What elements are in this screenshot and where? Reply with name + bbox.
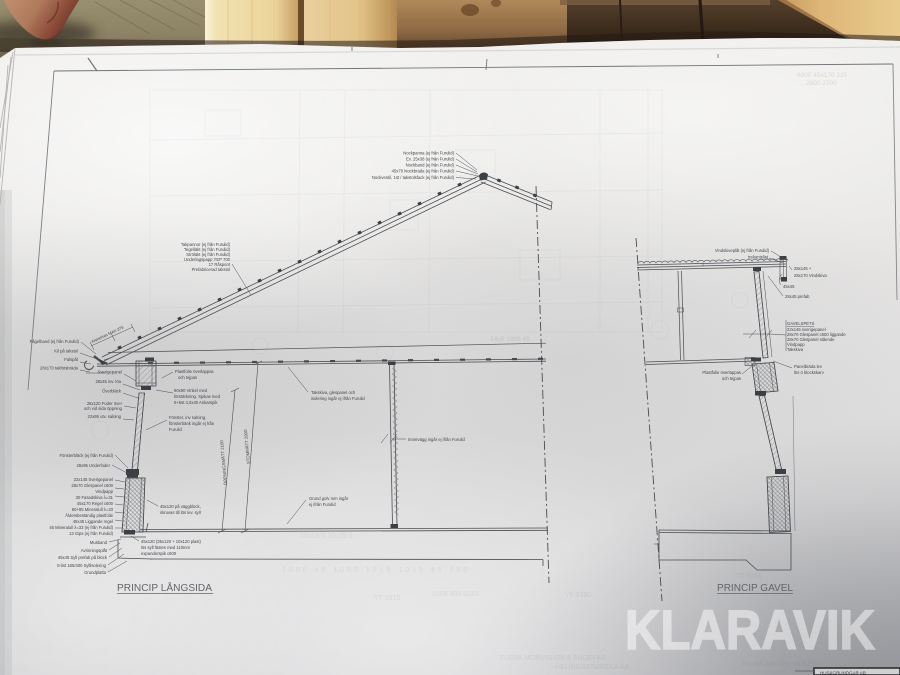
svg-text:45 Mineralull λ=33 (ej från Fu: 45 Mineralull λ=33 (ej från Furulid) (49, 525, 113, 530)
svg-text:Innervägg ingår ej ifrån Furul: Innervägg ingår ej ifrån Furulid (408, 437, 465, 442)
svg-text:Överbläck: Överbläck (102, 389, 122, 394)
svg-text:trekantslist: trekantslist (748, 255, 769, 260)
svg-text:skruvas till lös lev. syll: skruvas till lös lev. syll (160, 510, 201, 515)
svg-text:80+95 Mineralull λ=33: 80+95 Mineralull λ=33 (72, 507, 114, 512)
svg-text:8800 45x170 1z5: 8800 45x170 1z5 (797, 72, 847, 79)
svg-text:PRINCIP LÅNGSIDA: PRINCIP LÅNGSIDA (117, 581, 212, 594)
svg-text:28x45 inv. löa: 28x45 inv. löa (95, 379, 121, 384)
svg-text:BV MX AB-GHL-AVKEGIA: BV MX AB-GHL-AVKEGIA (742, 661, 824, 668)
svg-text:förstärkning. Spikas med: förstärkning. Spikas med (174, 394, 221, 399)
svg-text:och tejpas: och tejpas (178, 375, 197, 380)
svg-text:1000 45 1000 1015 1015: 1000 45 1000 1015 1015 45 500 (282, 567, 470, 574)
svg-text:45x120 (35x120 + 10x120 plast): 45x120 (35x120 + 10x120 plast) (141, 539, 202, 544)
svg-text:YT 5310: YT 5310 (374, 595, 400, 602)
svg-text:5+5st 4,0x40 Ankarspik: 5+5st 4,0x40 Ankarspik (174, 400, 218, 405)
svg-text:Åldersbeständig plastfolie: Åldersbeständig plastfolie (65, 513, 113, 518)
svg-text:Kil på takstol: Kil på takstol (54, 349, 78, 354)
svg-text:HELINGSATMKEKA AB: HELINGSATMKEKA AB (555, 664, 630, 671)
svg-text:Fönsterbläck (ej från Furulid): Fönsterbläck (ej från Furulid) (59, 453, 113, 458)
svg-text:28x95 Underfoder: 28x95 Underfoder (76, 463, 110, 468)
svg-text:HUS&GRUNDGAR AB: HUS&GRUNDGAR AB (820, 671, 866, 675)
svg-text:10u15 0 10u15 0: 10u15 0 10u15 0 (300, 533, 353, 540)
svg-text:13 Gips (ej från Furulid): 13 Gips (ej från Furulid) (69, 531, 114, 536)
svg-text:28x170 Vindskiva: 28x170 Vindskiva (794, 273, 827, 278)
svg-text:Takskiva, glespanel och: Takskiva, glespanel och (311, 390, 356, 395)
svg-text:Vindpapp: Vindpapp (95, 489, 113, 494)
svg-text:Falspåt: Falspåt (64, 357, 79, 362)
svg-text:45x70 Nockbräda (ej från Furul: 45x70 Nockbräda (ej från Furulid) (392, 169, 455, 174)
svg-text:S-list 165/400 Syllisolering: S-list 165/400 Syllisolering (57, 563, 107, 568)
svg-text:expanderspik c600: expanderspik c600 (141, 551, 177, 556)
svg-text:ÖPPNINGSMÅTT 2100: ÖPPNINGSMÅTT 2100 (219, 439, 228, 485)
svg-text:28x145 +: 28x145 + (794, 266, 812, 271)
svg-text:Y6 9350: Y6 9350 (565, 592, 591, 599)
svg-text:Nockventil, 1st / takstolsfack: Nockventil, 1st / takstolsfack (ej från … (372, 175, 455, 180)
svg-text:22x145 Sverigepanel: 22x145 Sverigepanel (74, 477, 113, 482)
svg-text:YT 9350: YT 9350 (736, 573, 762, 580)
svg-text:lös ö blockskarv: lös ö blockskarv (794, 370, 825, 375)
svg-text:45x45: 45x45 (783, 284, 795, 289)
svg-text:Vindskiveplåt (ej från Furulid: Vindskiveplåt (ej från Furulid) (715, 248, 770, 253)
svg-text:Fönster, inv salning,: Fönster, inv salning, (169, 415, 206, 420)
svg-text:28x45 prefab: 28x45 prefab (785, 294, 810, 299)
svg-text:30 Fasadskiva λ=31: 30 Fasadskiva λ=31 (76, 495, 114, 500)
svg-text:Plastfolie överlappas: Plastfolie överlappas (702, 370, 741, 375)
svg-text:Grund golv mm ingår: Grund golv mm ingår (309, 496, 349, 501)
svg-text:FLERA MONVIGATA & ANGEFAR: FLERA MONVIGATA & ANGEFAR (500, 655, 606, 662)
svg-text:Avrinningsplåt: Avrinningsplåt (81, 548, 108, 553)
svg-text:ej ifrån Furulid: ej ifrån Furulid (309, 502, 336, 507)
svg-text:Panelbräda lev: Panelbräda lev (794, 364, 823, 369)
svg-text:lös syll fästes med 110mm: lös syll fästes med 110mm (141, 545, 191, 550)
svg-text:Sverigepanel: Sverigepanel (98, 370, 123, 375)
svg-text:Nockpanna (ej från Furulid): Nockpanna (ej från Furulid) (403, 151, 454, 156)
svg-text:KLARAVIK: KLARAVIK (625, 598, 875, 661)
svg-text:2800 2700: 2800 2700 (806, 80, 837, 87)
svg-text:Musband: Musband (90, 540, 108, 545)
svg-text:STOMMÅTT 2900: STOMMÅTT 2900 (243, 429, 251, 465)
svg-text:90x90 Vinkel med: 90x90 Vinkel med (174, 388, 208, 393)
svg-text:1009 900 5015: 1009 900 5015 (432, 591, 479, 598)
svg-text:isolering ingår ej ifrån Furul: isolering ingår ej ifrån Furulid (311, 396, 365, 401)
svg-text:45x45 Liggande regel: 45x45 Liggande regel (73, 519, 113, 524)
svg-text:22x95 utv. salning: 22x95 utv. salning (88, 414, 122, 419)
svg-text:28x70 Glespanel c600: 28x70 Glespanel c600 (71, 483, 113, 488)
svg-text:Prefabricerad takstol: Prefabricerad takstol (192, 267, 230, 272)
svg-text:45x120 på väggblock,: 45x120 på väggblock, (160, 504, 201, 509)
svg-text:och tejpas: och tejpas (722, 376, 741, 381)
svg-text:Furulid: Furulid (169, 427, 182, 432)
svg-text:Plastfolie överlappas: Plastfolie överlappas (175, 369, 214, 374)
svg-text:Grundplatta: Grundplatta (84, 570, 107, 575)
svg-text:Takskiva: Takskiva (787, 347, 804, 352)
svg-text:45x170 Regel c600: 45x170 Regel c600 (77, 501, 114, 506)
svg-text:28x170 takfotsbräda: 28x170 takfotsbräda (40, 366, 79, 371)
svg-text:Nockband (ej från Furulid): Nockband (ej från Furulid) (406, 163, 455, 168)
svg-text:och vid sida öppning: och vid sida öppning (84, 406, 123, 411)
svg-text:fönsterbänk ingår ej från: fönsterbänk ingår ej från (169, 421, 215, 426)
svg-text:14u5 1808 45: 14u5 1808 45 (490, 336, 530, 343)
svg-text:Anpassas MAX 375: Anpassas MAX 375 (90, 324, 125, 344)
svg-text:45x45 Syll prefab på block: 45x45 Syll prefab på block (58, 555, 108, 560)
svg-text:Ev. 25x38 (ej från Furulid): Ev. 25x38 (ej från Furulid) (406, 157, 454, 162)
svg-text:PRINCIP GAVEL: PRINCIP GAVEL (717, 582, 793, 594)
svg-text:Fågelband (ej från Furulid): Fågelband (ej från Furulid) (30, 339, 80, 344)
svg-text:GAVELSPETS: GAVELSPETS (787, 321, 815, 326)
